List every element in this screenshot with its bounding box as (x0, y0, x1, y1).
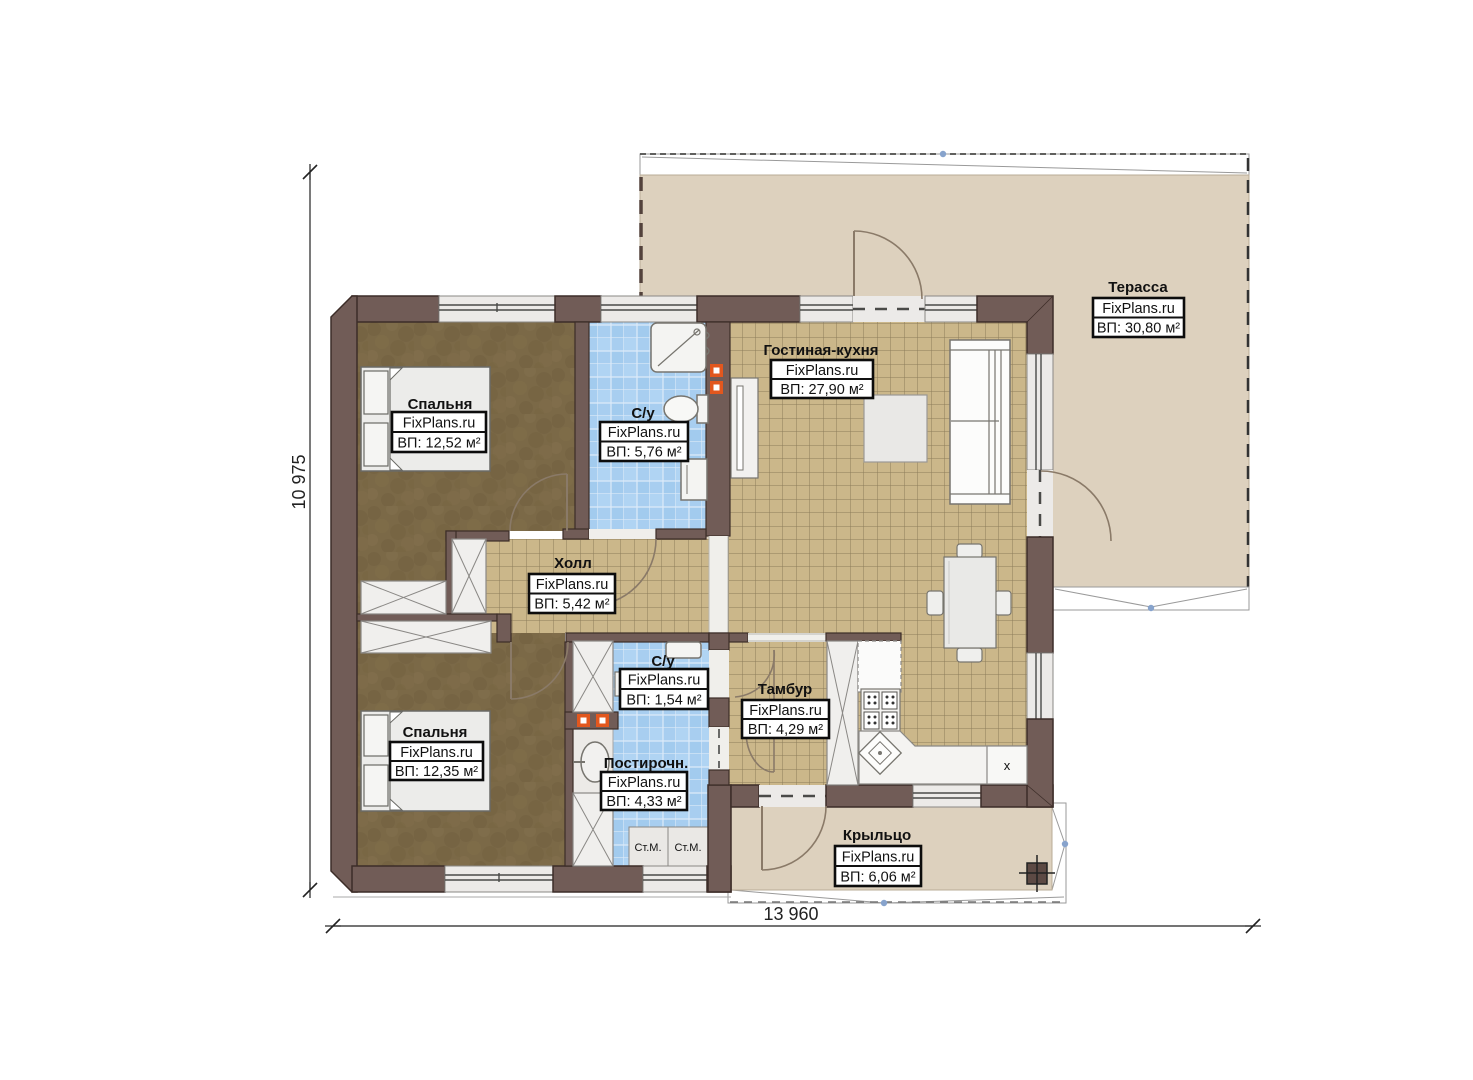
svg-text:С/у: С/у (651, 653, 675, 670)
svg-text:10 975: 10 975 (289, 454, 309, 509)
svg-text:Тамбур: Тамбур (758, 681, 812, 698)
svg-text:ВП: 30,80 м²: ВП: 30,80 м² (1097, 321, 1180, 337)
svg-text:FixPlans.ru: FixPlans.ru (842, 850, 915, 866)
svg-text:Ст.М.: Ст.М. (674, 842, 701, 854)
svg-text:FixPlans.ru: FixPlans.ru (608, 425, 681, 441)
svg-text:ВП: 6,06 м²: ВП: 6,06 м² (840, 870, 915, 886)
svg-text:x: x (1004, 758, 1011, 773)
svg-text:FixPlans.ru: FixPlans.ru (786, 363, 859, 379)
svg-text:Постирочн.: Постирочн. (604, 755, 689, 772)
svg-text:13 960: 13 960 (763, 904, 818, 924)
svg-text:ВП: 12,52 м²: ВП: 12,52 м² (397, 436, 480, 452)
svg-text:ВП: 5,42 м²: ВП: 5,42 м² (534, 597, 609, 613)
svg-text:Терасса: Терасса (1108, 279, 1168, 296)
svg-text:ВП: 12,35 м²: ВП: 12,35 м² (395, 764, 478, 780)
svg-text:Ст.М.: Ст.М. (634, 842, 661, 854)
svg-text:FixPlans.ru: FixPlans.ru (608, 775, 681, 791)
svg-text:FixPlans.ru: FixPlans.ru (749, 703, 822, 719)
svg-text:ВП: 1,54 м²: ВП: 1,54 м² (626, 693, 701, 709)
svg-text:Крыльцо: Крыльцо (843, 827, 911, 844)
svg-text:FixPlans.ru: FixPlans.ru (1102, 301, 1175, 317)
svg-text:Холл: Холл (554, 555, 592, 572)
svg-text:С/у: С/у (631, 405, 655, 422)
svg-text:Спальня: Спальня (403, 724, 468, 741)
svg-text:FixPlans.ru: FixPlans.ru (400, 745, 473, 761)
svg-text:FixPlans.ru: FixPlans.ru (628, 673, 701, 689)
svg-text:Гостиная-кухня: Гостиная-кухня (764, 342, 879, 359)
svg-text:Спальня: Спальня (408, 396, 473, 413)
svg-text:ВП: 27,90 м²: ВП: 27,90 м² (780, 382, 863, 398)
svg-text:FixPlans.ru: FixPlans.ru (403, 416, 476, 432)
svg-text:ВП: 4,33 м²: ВП: 4,33 м² (606, 794, 681, 810)
svg-text:ВП: 5,76 м²: ВП: 5,76 м² (606, 445, 681, 461)
svg-text:ВП: 4,29 м²: ВП: 4,29 м² (748, 722, 823, 738)
svg-text:FixPlans.ru: FixPlans.ru (536, 577, 609, 593)
